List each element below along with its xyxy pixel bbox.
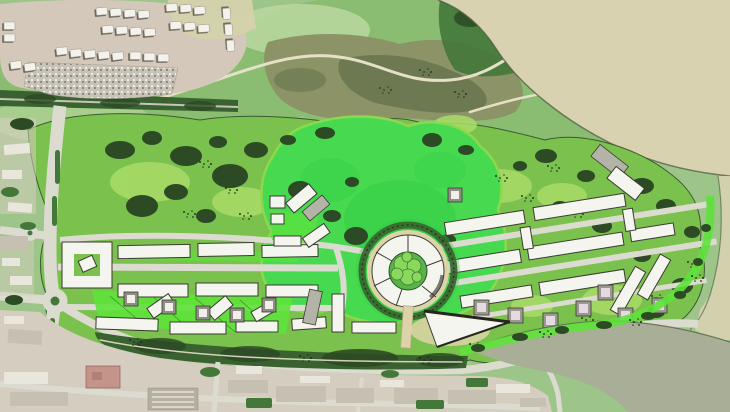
parking-lot [148, 388, 198, 410]
roundabout [46, 292, 64, 310]
courtyard-building [62, 242, 112, 288]
informal-settlement [24, 62, 178, 99]
map-canvas [0, 0, 730, 412]
red-roof-building [86, 366, 120, 388]
masterplan-map [0, 0, 730, 412]
